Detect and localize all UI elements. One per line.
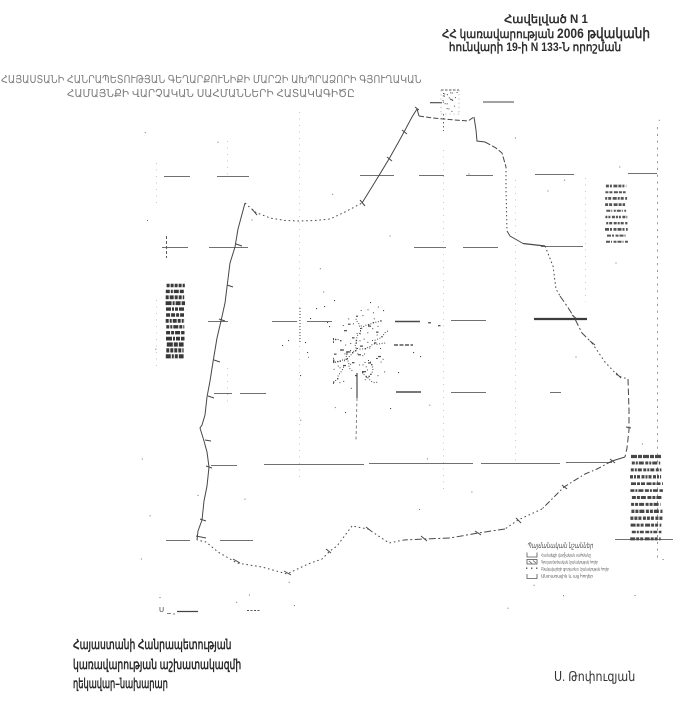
svg-text:Պայմանական նշաններ: Պայմանական նշաններ (527, 541, 593, 550)
svg-text:Համայնքի վարչական սահմանը: Համայնքի վարչական սահմանը (541, 553, 591, 558)
svg-text:Անտառային և այլ հողեր: Անտառային և այլ հողեր (541, 574, 593, 579)
svg-text:Ս: Ս (159, 607, 164, 614)
svg-text:Գյուղատնտեսական նշանակության հ: Գյուղատնտեսական նշանակության հողեր (541, 560, 598, 565)
svg-text:Բնակավայրերի գյուղատնտ. նշանակ: Բնակավայրերի գյուղատնտ. նշանակության հող… (541, 567, 609, 572)
